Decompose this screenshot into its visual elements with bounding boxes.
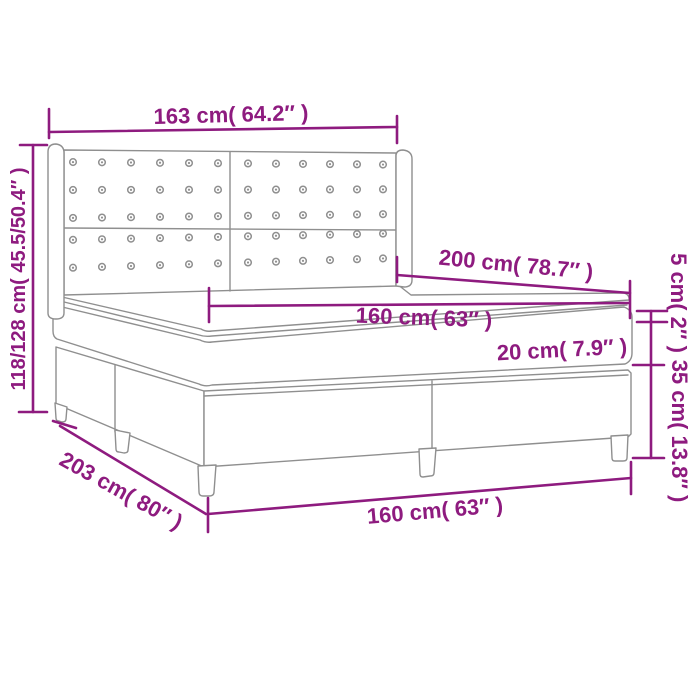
headboard-button-dot [275,214,277,216]
headboard-button-dot [382,188,384,190]
headboard-button-dot [356,163,358,165]
headboard-button-dot [101,266,103,268]
headboard-button-dot [356,188,358,190]
headboard-button-dot [329,214,331,216]
headboard-button-dot [382,163,384,165]
headboard-button-dot [217,236,219,238]
headboard-button-dot [188,189,190,191]
dim-base-height-label: 35 cm( 13.8″ ) [668,360,690,503]
headboard-button-dot [72,189,74,191]
dim-topper-and-base-height-lines [633,311,667,458]
headboard-button-dot [356,213,358,215]
headboard-right-wing [396,150,412,287]
headboard-button-dot [275,235,277,237]
headboard-button-dot [130,189,132,191]
headboard-button-dot [72,161,74,163]
headboard-button-dot [217,262,219,264]
headboard-button-dot [159,264,161,266]
headboard-button-dot [130,161,132,163]
headboard-button-dot [130,265,132,267]
headboard-button-dot [159,216,161,218]
dim-headboard-width-label: 163 cm( 64.2″ ) [153,102,308,128]
leg-back-left [55,403,67,422]
headboard-button-dot [302,214,304,216]
headboard-button-dot [302,260,304,262]
headboard-button-dot [329,188,331,190]
headboard-button-dot [188,215,190,217]
headboard-button-dot [101,238,103,240]
headboard-button-dot [130,216,132,218]
box-foot-face [204,370,631,467]
leg-front-corner [198,465,216,496]
headboard-button-dot [329,259,331,261]
headboard-button-dot [275,261,277,263]
headboard-button-dot [217,189,219,191]
headboard-button-dot [382,233,384,235]
headboard-button-dot [302,163,304,165]
headboard-button-dot [101,189,103,191]
dim-overall-height-label: 118/128 cm( 45.5/50.4″ ) [9,167,29,390]
headboard-button-dot [188,162,190,164]
headboard-button-dot [130,238,132,240]
headboard-button-dot [159,162,161,164]
headboard-button-dot [382,257,384,259]
headboard-button-dot [101,161,103,163]
headboard-button-dot [302,188,304,190]
headboard-button-dot [356,258,358,260]
headboard-button-dot [329,163,331,165]
headboard-button-dot [159,237,161,239]
headboard-button-dot [382,213,384,215]
leg-front-right [611,435,628,461]
headboard-button-dot [302,234,304,236]
dim-topper-height-label: 5 cm( 2″ ) [667,253,689,353]
headboard-button-dot [72,239,74,241]
leg-mid-left [115,430,130,453]
headboard-button-dot [247,235,249,237]
headboard-button-dot [217,162,219,164]
headboard-button-dot [247,215,249,217]
headboard-button-dot [72,217,74,219]
headboard-button-dot [356,233,358,235]
headboard-button-dot [72,267,74,269]
headboard-button-dot [188,236,190,238]
dim-mattress-width-label: 160 cm( 63″ ) [355,305,492,332]
headboard-button-dot [275,163,277,165]
headboard-button-dot [159,189,161,191]
headboard-button-dot [329,234,331,236]
headboard-button-dot [101,216,103,218]
leg-front-middle [419,448,436,477]
headboard-left-wing [48,144,64,319]
headboard-button-dot [247,261,249,263]
headboard-button-dot [275,188,277,190]
bed-dimension-diagram: 163 cm( 64.2″ ) 118/128 cm( 45.5/50.4″ )… [0,0,700,700]
headboard-button-dot [188,263,190,265]
headboard-button-dot [247,189,249,191]
headboard-button-dot [217,215,219,217]
headboard-button-dot [247,162,249,164]
